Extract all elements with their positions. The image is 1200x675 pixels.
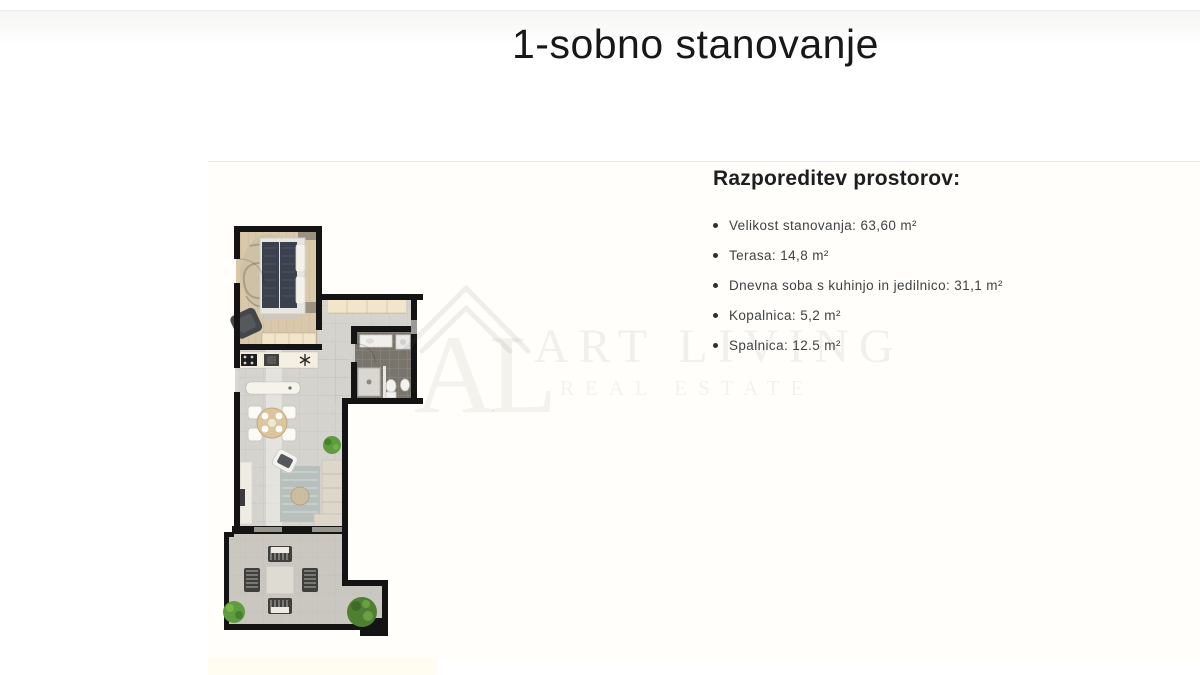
bullet-icon	[713, 313, 718, 318]
layout-panel: Razporeditev prostorov: Velikost stanova…	[713, 167, 1133, 367]
page-title: 1-sobno stanovanje	[512, 20, 879, 69]
bullet-icon	[713, 253, 718, 258]
layout-heading: Razporeditev prostorov:	[713, 167, 1133, 191]
page: 1-sobno stanovanje	[0, 0, 1200, 675]
layout-item-text: Terasa: 14,8 m²	[729, 248, 829, 265]
layout-list: Velikost stanovanja: 63,60 m² Terasa: 14…	[713, 218, 1133, 354]
bullet-icon	[713, 223, 718, 228]
next-image-sliver	[208, 658, 437, 675]
bullet-icon	[713, 283, 718, 288]
layout-item: Kopalnica: 5,2 m²	[713, 308, 1133, 325]
watermark-monogram: AL	[414, 313, 551, 437]
layout-item: Spalnica: 12.5 m²	[713, 338, 1133, 355]
layout-item: Velikost stanovanja: 63,60 m²	[713, 218, 1133, 235]
layout-item: Dnevna soba s kuhinjo in jedilnico: 31,1…	[713, 278, 1133, 295]
watermark-tagline: REAL ESTATE	[560, 376, 814, 400]
layout-item-text: Spalnica: 12.5 m²	[729, 338, 841, 355]
bathroom	[355, 330, 413, 400]
floor-plan	[210, 216, 430, 646]
bedroom-wardrobe	[262, 333, 316, 345]
indoor-plant	[323, 436, 341, 454]
layout-item-text: Kopalnica: 5,2 m²	[729, 308, 841, 325]
hall-closet	[328, 300, 406, 313]
layout-item-text: Dnevna soba s kuhinjo in jedilnico: 31,1…	[729, 278, 1003, 295]
layout-item: Terasa: 14,8 m²	[713, 248, 1133, 265]
layout-item-text: Velikost stanovanja: 63,60 m²	[729, 218, 917, 235]
bullet-icon	[713, 343, 718, 348]
floorplan-image: AL ART LIVING REAL ESTATE Razporeditev p…	[208, 161, 1200, 659]
